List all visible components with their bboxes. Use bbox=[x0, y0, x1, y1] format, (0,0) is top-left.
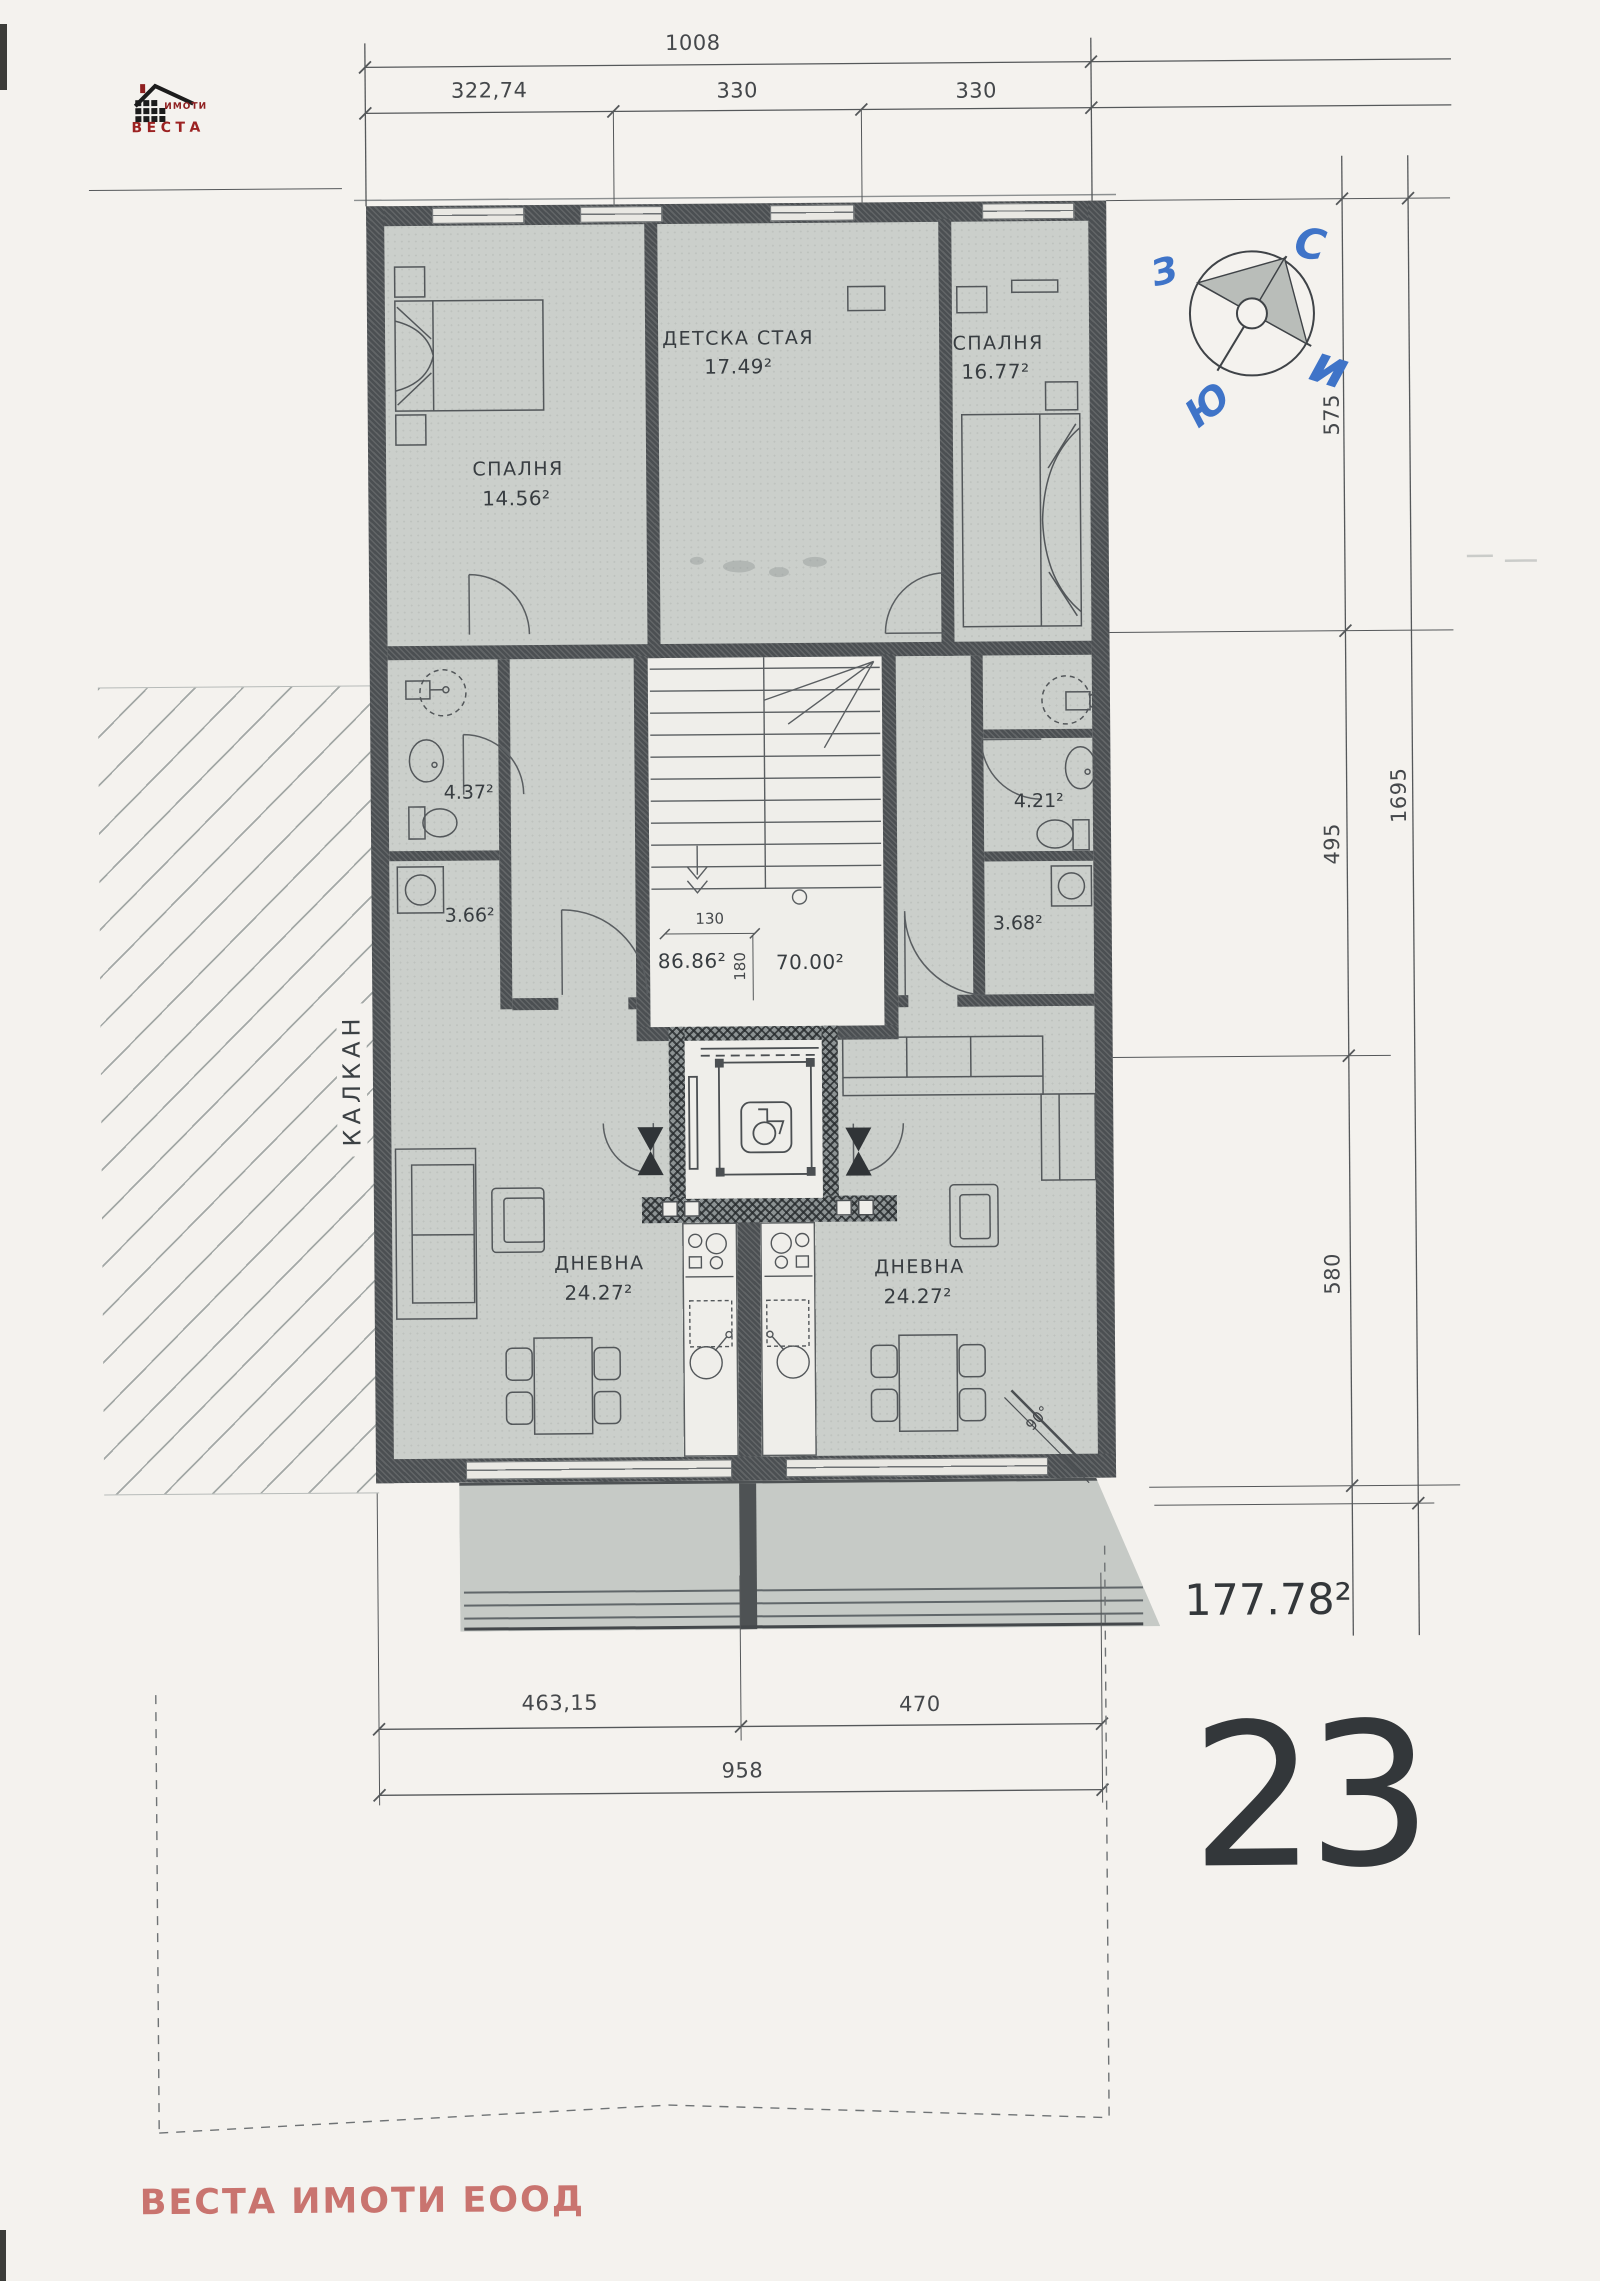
room-area-kids: 17.49² bbox=[704, 354, 772, 379]
dim-bottom-total: 958 bbox=[721, 1758, 763, 1782]
room-area-living-left: 24.27² bbox=[564, 1280, 632, 1305]
dim-stair-width: 130 bbox=[695, 910, 724, 928]
dim-top-seg3: 330 bbox=[955, 78, 997, 102]
room-area-bedroom-right: 16.77² bbox=[961, 359, 1029, 384]
compass-rose bbox=[1189, 251, 1314, 376]
staircase bbox=[650, 656, 882, 905]
scanned-floor-plan-sheet: ИМОТИ ВЕСТА КАЛКАН bbox=[0, 0, 1600, 2281]
smudge-marks bbox=[690, 550, 1537, 578]
elevator bbox=[689, 1048, 820, 1176]
total-area-label: 177.78² bbox=[1184, 1575, 1352, 1626]
room-name-living-right: ДНЕВНА bbox=[874, 1256, 965, 1279]
footer-company-name: ВЕСТА ИМОТИ ЕООД bbox=[140, 2180, 586, 2223]
room-name-kids: ДЕТСКА СТАЯ bbox=[662, 327, 814, 350]
bathroom-fixtures bbox=[396, 665, 1104, 914]
dim-top-total: 1008 bbox=[665, 31, 721, 55]
room-area-bath-left: 4.37² bbox=[444, 781, 494, 803]
kitchen-fixtures bbox=[685, 1233, 813, 1379]
room-name-living-left: ДНЕВНА bbox=[554, 1252, 645, 1275]
dim-bottom-seg1: 463,15 bbox=[522, 1691, 599, 1716]
boundary-dashed-lines bbox=[155, 1546, 1110, 2133]
door-arcs bbox=[462, 570, 1045, 1177]
dim-right-seg3: 580 bbox=[1320, 1253, 1344, 1295]
room-name-bedroom-right: СПАЛНЯ bbox=[952, 332, 1043, 355]
wheelchair-icon bbox=[741, 1102, 791, 1152]
plan-content: ИМОТИ ВЕСТА КАЛКАН bbox=[0, 0, 1600, 2281]
entry-door-markers bbox=[637, 1125, 871, 1177]
room-name-bedroom-left: СПАЛНЯ bbox=[472, 458, 563, 481]
dim-right-seg2: 495 bbox=[1320, 823, 1344, 865]
corner-cut bbox=[1004, 1390, 1096, 1484]
room-area-bath-right: 4.21² bbox=[1014, 790, 1064, 812]
dim-right-total: 1695 bbox=[1387, 767, 1411, 823]
dim-stair-depth: 180 bbox=[731, 952, 749, 981]
common-area-left: 86.86² bbox=[658, 949, 726, 974]
furniture bbox=[389, 262, 1098, 1435]
scan-artifact-bottom-left bbox=[0, 2230, 6, 2281]
room-area-living-right: 24.27² bbox=[883, 1284, 951, 1309]
common-area-right: 70.00² bbox=[776, 950, 844, 975]
apartment-number: 23 bbox=[1190, 1680, 1424, 1913]
room-area-bedroom-left: 14.56² bbox=[482, 486, 550, 511]
dim-top-seg2: 330 bbox=[716, 78, 758, 102]
room-area-storage-left: 3.66² bbox=[445, 904, 495, 926]
dim-top-seg1: 322,74 bbox=[451, 78, 528, 103]
dim-bottom-seg2: 470 bbox=[899, 1692, 941, 1716]
room-area-storage-right: 3.68² bbox=[993, 912, 1043, 934]
